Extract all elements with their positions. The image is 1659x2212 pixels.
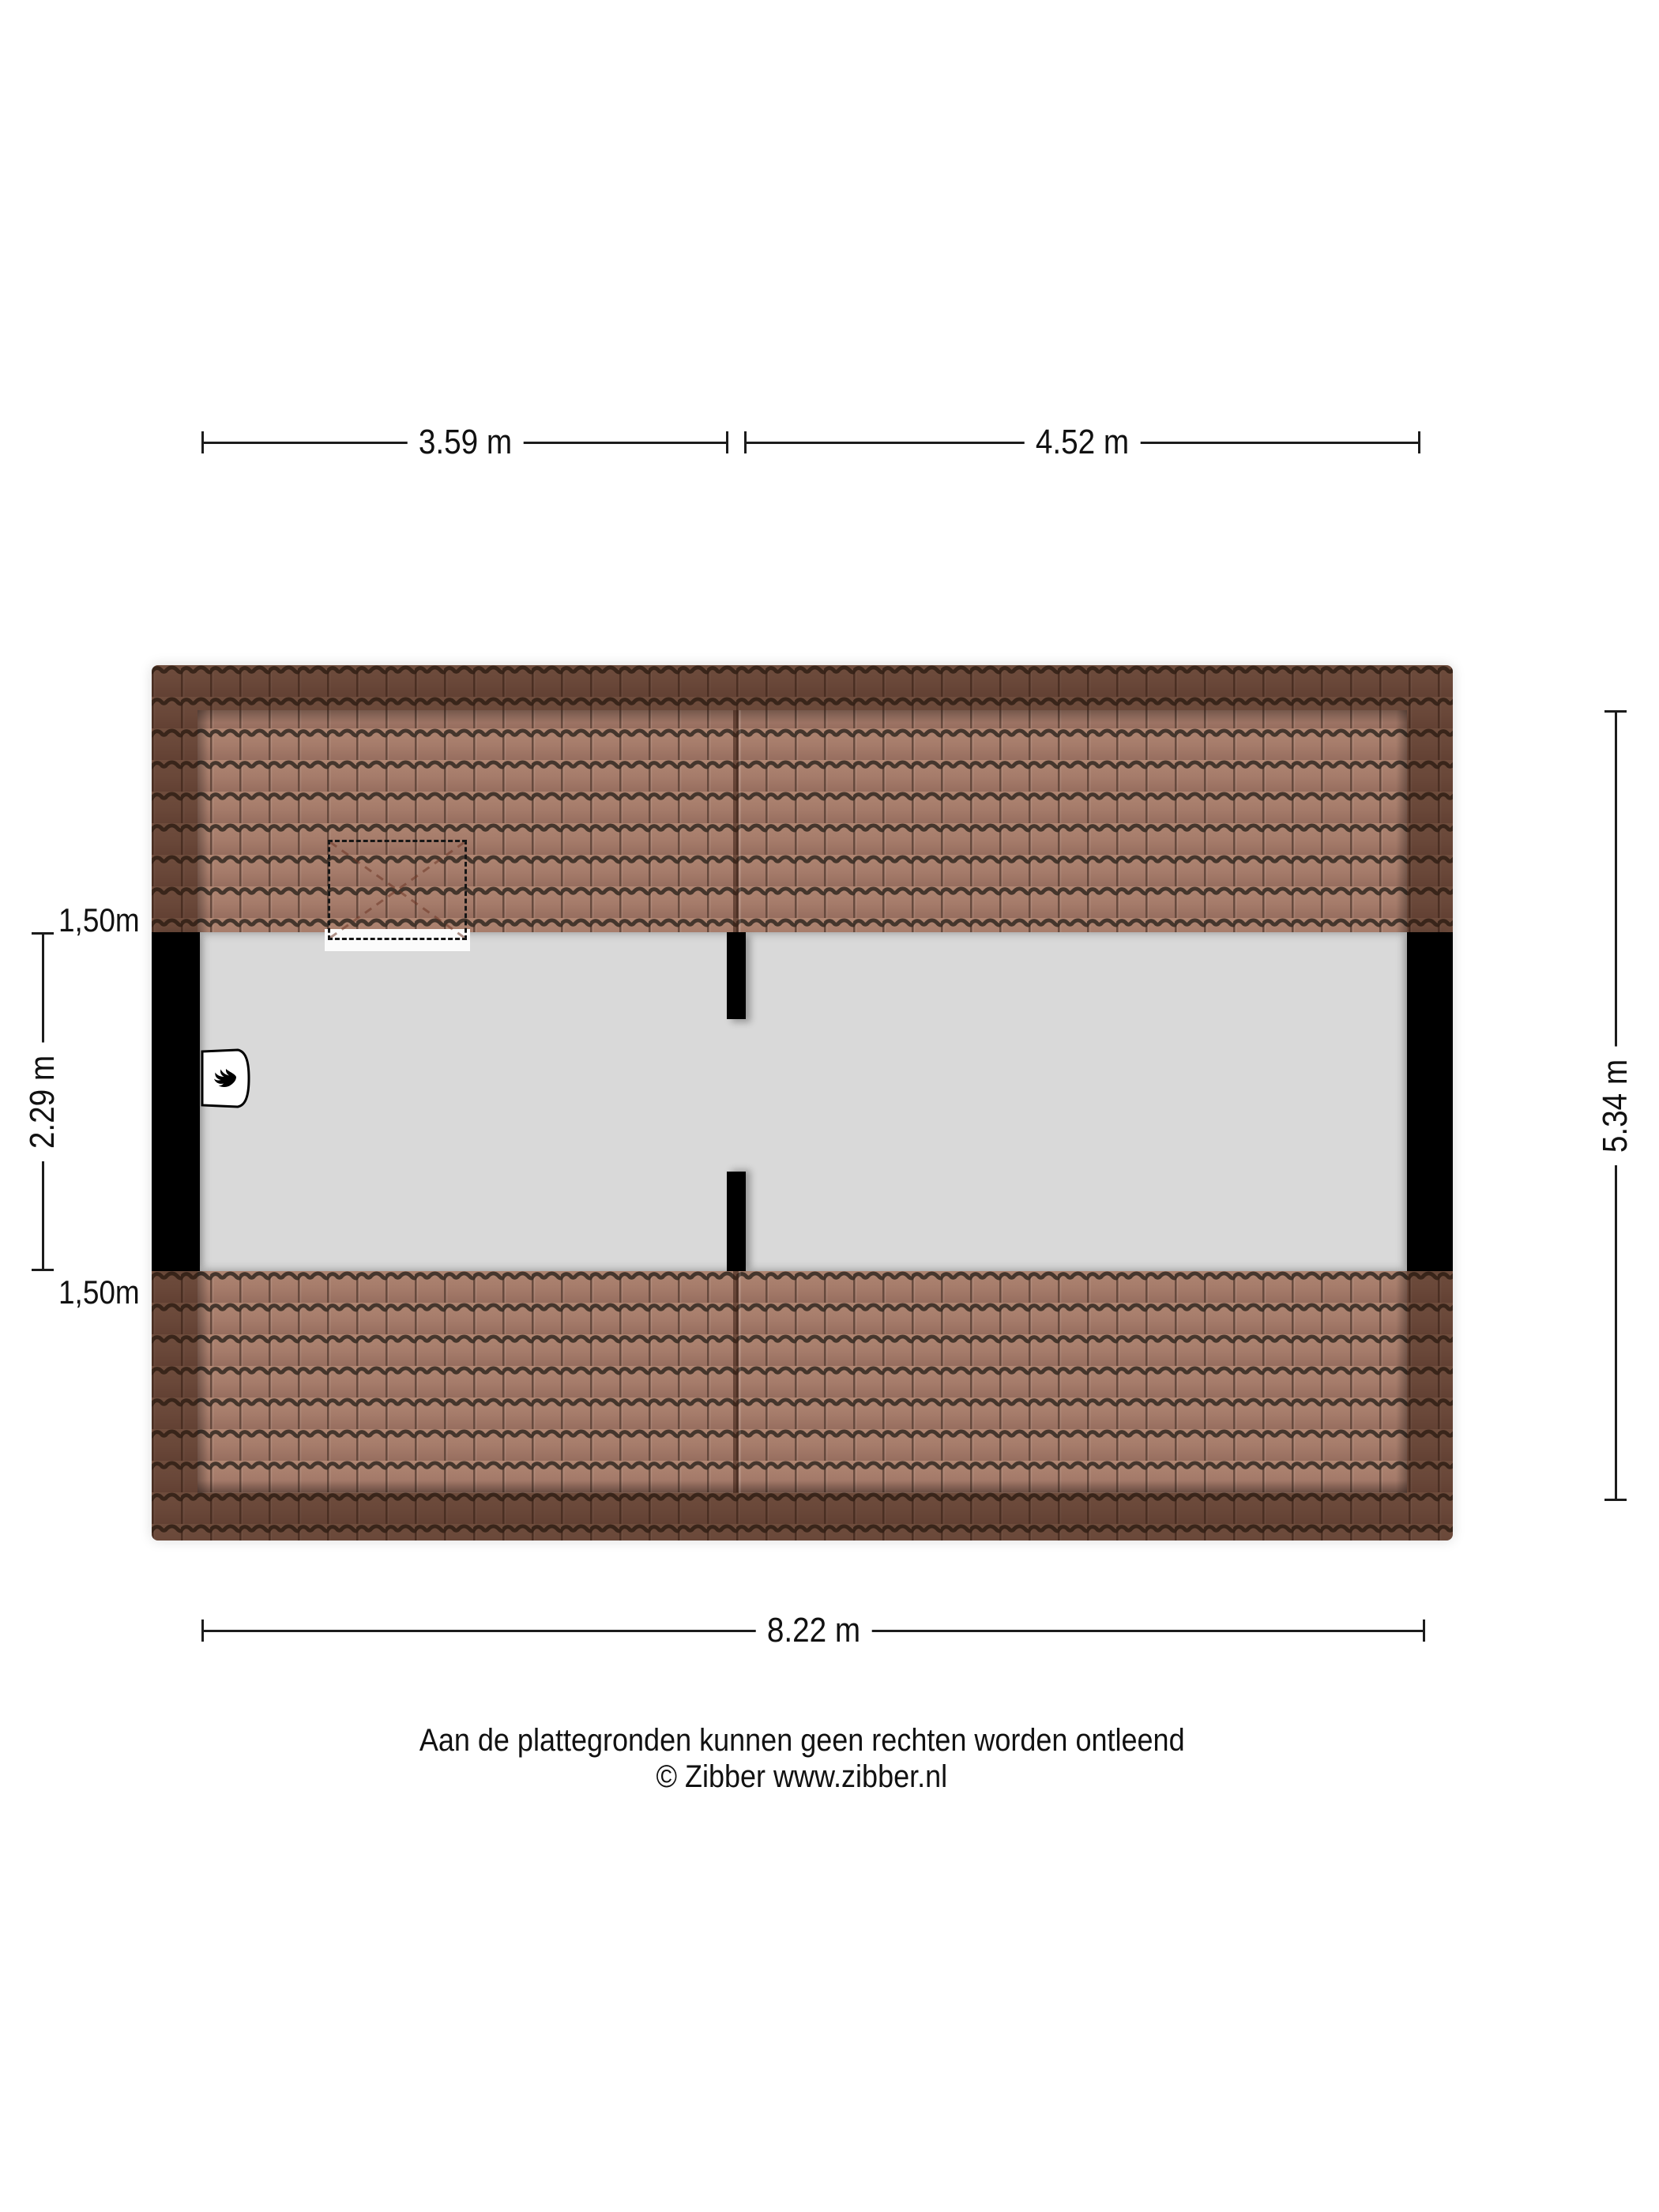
dimension-value: 3.59 m [407, 423, 523, 462]
wall-center-bottom-stub [727, 1172, 746, 1271]
roof-depth-label-bottom: 1,50m [58, 1273, 140, 1311]
dimension-value: 5.34 m [1596, 1046, 1635, 1164]
dimension-tick [1423, 1619, 1425, 1642]
dimension-right-total: 5.34 m [1604, 710, 1627, 1501]
roof-depth-label-top: 1,50m [58, 901, 140, 939]
roof-window-cross [330, 842, 465, 938]
attic-floor [152, 932, 1453, 1271]
dimension-tick [201, 431, 204, 453]
dimension-tick [1604, 1499, 1627, 1501]
disclaimer-text: Aan de plattegronden kunnen geen rechten… [419, 1722, 1185, 1759]
dimension-top-left: 3.59 m [201, 431, 728, 453]
floorplan-page: 3.59 m 4.52 m [0, 0, 1659, 2212]
dimension-tick [32, 932, 54, 935]
wall-center-top-stub [727, 932, 746, 1019]
boiler-icon [200, 1048, 252, 1109]
floorplan-drawing: Zolder [152, 665, 1453, 1540]
wall-left [152, 932, 200, 1271]
wall-right [1407, 932, 1453, 1271]
dimension-tick [32, 1269, 54, 1271]
dimension-value: 8.22 m [755, 1611, 871, 1650]
dimension-tick [1418, 431, 1420, 453]
copyright-text: © Zibber www.zibber.nl [656, 1759, 948, 1795]
footer: Aan de plattegronden kunnen geen rechten… [0, 1722, 1604, 1795]
dimension-top-right: 4.52 m [744, 431, 1420, 453]
dimension-tick [201, 1619, 204, 1642]
dimension-tick [1604, 710, 1627, 713]
dimension-tick [726, 431, 728, 453]
dimension-bottom-total: 8.22 m [201, 1619, 1425, 1642]
roof-tiles-bottom [152, 1271, 1453, 1540]
dimension-left-room: 2.29 m [32, 932, 54, 1271]
roof-window-icon [328, 840, 467, 940]
dimension-value: 4.52 m [1025, 423, 1141, 462]
dimension-value: 2.29 m [23, 1042, 62, 1161]
dimension-tick [744, 431, 747, 453]
roof-band-bottom [152, 1271, 1453, 1540]
